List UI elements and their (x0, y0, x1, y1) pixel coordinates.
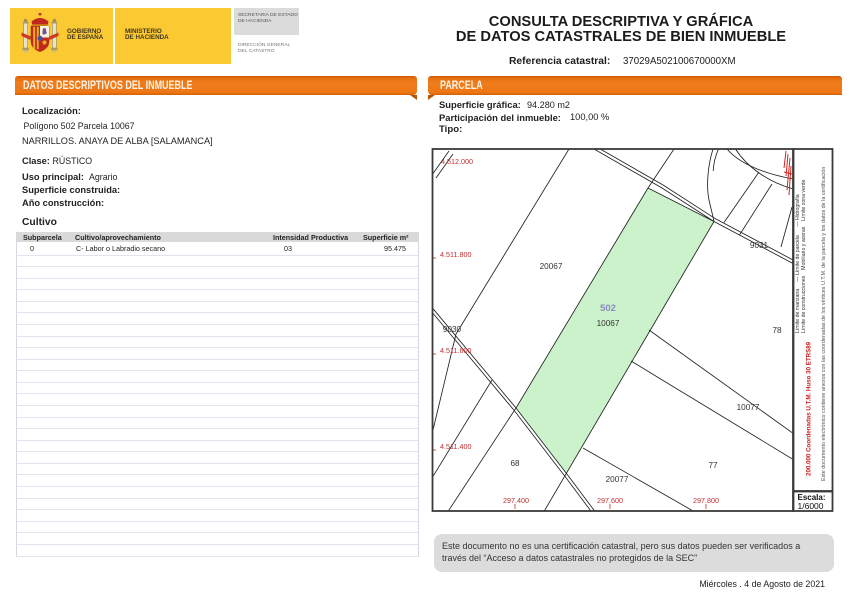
svg-text:10077: 10077 (737, 403, 760, 412)
svg-text:Límite de construcciones Mo: Límite de construcciones Mobiliario y ac… (801, 179, 807, 333)
svg-text:78: 78 (772, 326, 782, 335)
svg-text:68: 68 (510, 459, 520, 468)
svg-text:Este documento electrónico con: Este documento electrónico contiene anex… (821, 167, 827, 481)
svg-text:77: 77 (708, 461, 718, 470)
svg-text:20067: 20067 (540, 262, 563, 271)
svg-text:1/6000: 1/6000 (798, 501, 824, 511)
svg-text:200.000 Coordenadas U.T.M. Hus: 200.000 Coordenadas U.T.M. Huso 30 ETRS8… (806, 341, 813, 476)
svg-text:4.511.800: 4.511.800 (440, 250, 471, 259)
svg-text:297.400: 297.400 (503, 496, 529, 505)
svg-text:20077: 20077 (606, 475, 629, 484)
svg-text:4.512.000: 4.512.000 (441, 157, 473, 166)
svg-text:297.800: 297.800 (693, 496, 719, 505)
svg-text:4.511.400: 4.511.400 (440, 442, 471, 451)
svg-text:297.600: 297.600 (597, 496, 623, 505)
svg-text:10067: 10067 (597, 319, 620, 328)
svg-text:502: 502 (600, 303, 616, 314)
svg-text:4.511.600: 4.511.600 (440, 346, 471, 355)
svg-text:9030: 9030 (443, 325, 462, 334)
svg-text:9031: 9031 (750, 241, 769, 250)
